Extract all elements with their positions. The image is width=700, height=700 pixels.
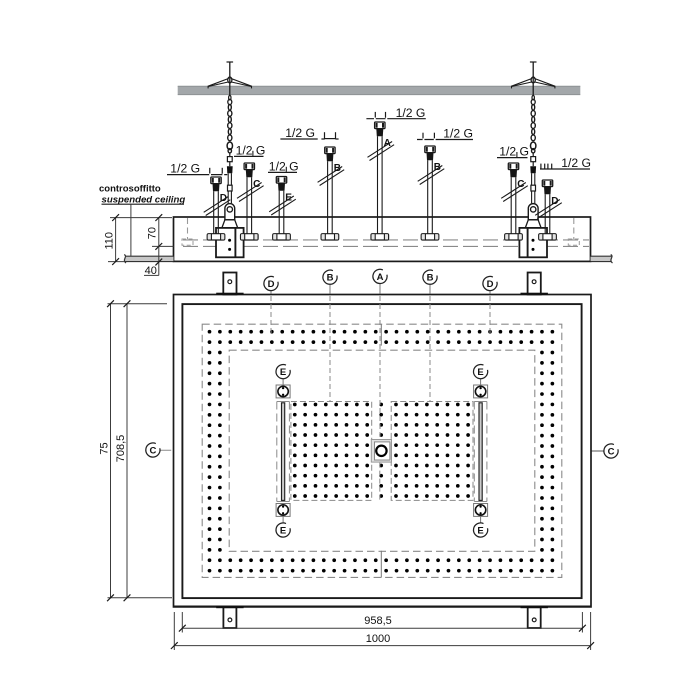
svg-text:E: E: [285, 193, 292, 204]
svg-text:708,5: 708,5: [115, 435, 127, 463]
svg-text:1/2 G: 1/2 G: [561, 156, 591, 170]
svg-text:110: 110: [104, 232, 116, 250]
svg-text:75: 75: [99, 442, 111, 454]
svg-text:B: B: [327, 273, 334, 284]
svg-text:1/2 G: 1/2 G: [396, 106, 426, 120]
svg-text:1/2 G: 1/2 G: [269, 160, 299, 174]
svg-text:E: E: [477, 367, 483, 378]
svg-text:E: E: [280, 367, 286, 378]
svg-text:C: C: [253, 179, 260, 190]
svg-text:controsoffitto: controsoffitto: [99, 183, 161, 194]
svg-text:B: B: [427, 273, 434, 284]
svg-text:C: C: [608, 446, 615, 457]
svg-text:B: B: [334, 163, 341, 174]
svg-text:A: A: [377, 272, 384, 283]
svg-text:1/2 G: 1/2 G: [285, 126, 315, 140]
svg-text:C: C: [517, 179, 524, 190]
svg-text:A: A: [384, 138, 391, 149]
svg-text:1/2 G: 1/2 G: [170, 162, 200, 176]
svg-text:1/2 G: 1/2 G: [236, 144, 266, 158]
svg-text:1000: 1000: [366, 633, 390, 645]
svg-text:B: B: [434, 162, 441, 173]
svg-text:D: D: [487, 279, 494, 290]
svg-text:D: D: [551, 196, 558, 207]
svg-text:1/2 G: 1/2 G: [499, 145, 529, 159]
svg-text:C: C: [149, 445, 156, 456]
svg-text:D: D: [268, 279, 275, 290]
svg-text:1/2 G: 1/2 G: [443, 127, 473, 141]
svg-text:70: 70: [147, 227, 159, 239]
svg-text:40: 40: [145, 265, 157, 277]
svg-text:958,5: 958,5: [364, 615, 392, 627]
svg-text:D: D: [220, 193, 227, 204]
svg-text:E: E: [477, 525, 483, 536]
svg-text:E: E: [280, 525, 286, 536]
